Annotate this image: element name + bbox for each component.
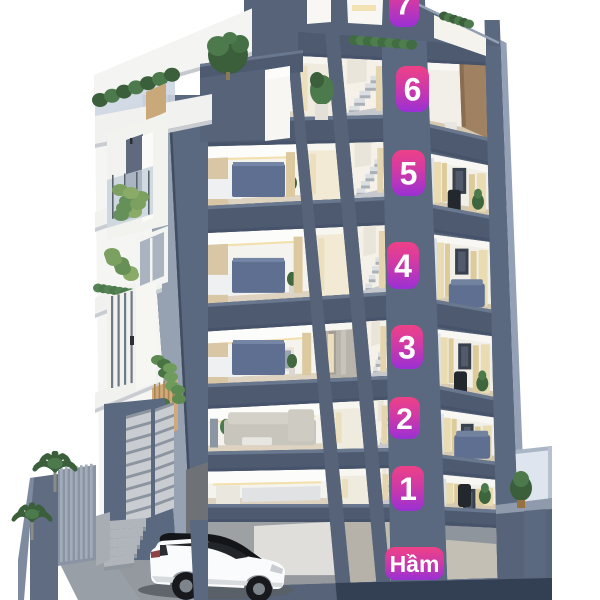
svg-text:Hầm: Hầm — [390, 551, 440, 577]
svg-text:7: 7 — [396, 0, 413, 21]
svg-text:4: 4 — [394, 248, 412, 284]
svg-text:1: 1 — [399, 471, 417, 507]
svg-text:3: 3 — [398, 330, 416, 366]
svg-text:6: 6 — [404, 72, 422, 108]
svg-text:5: 5 — [400, 156, 418, 192]
svg-text:2: 2 — [396, 403, 413, 436]
